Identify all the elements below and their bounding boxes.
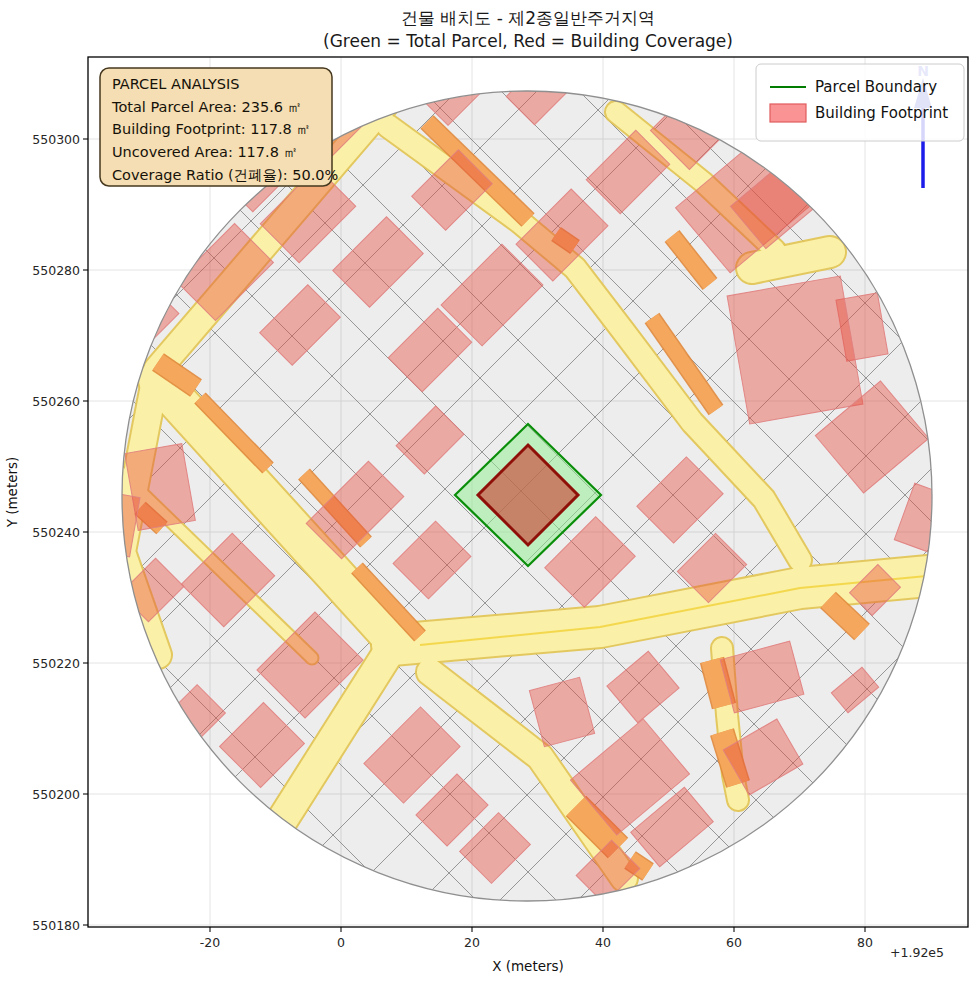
x-tick-label: 40 (595, 935, 611, 950)
legend-footprint-label: Building Footprint (815, 104, 948, 122)
x-axis-label: X (meters) (492, 958, 564, 974)
y-tick-label: 550280 (32, 263, 80, 278)
chart-title: 건물 배치도 - 제2종일반주거지역 (401, 8, 655, 28)
axis-offset-text: +1.92e5 (890, 945, 944, 960)
parcel-analysis-box: PARCEL ANALYSIS Total Parcel Area: 235.6… (100, 68, 338, 186)
road (752, 252, 830, 268)
x-tick-label: 0 (337, 935, 345, 950)
x-tick-label: 20 (464, 935, 480, 950)
y-tick-label: 550200 (32, 787, 80, 802)
x-tick-label: 60 (726, 935, 742, 950)
figure-canvas: -200204060805501805502005502205502405502… (0, 0, 976, 990)
y-tick-label: 550220 (32, 656, 80, 671)
x-tick-label: -20 (200, 935, 220, 950)
info-coverage-ratio: Coverage Ratio (건폐율): 50.0% (112, 167, 338, 183)
y-tick-label: 550260 (32, 394, 80, 409)
y-tick-label: 550240 (32, 525, 80, 540)
building (727, 276, 863, 424)
legend-parcel-label: Parcel Boundary (815, 78, 937, 96)
info-building-footprint: Building Footprint: 117.8 ㎡ (112, 121, 311, 137)
x-tick-label: 80 (857, 935, 873, 950)
info-total-area: Total Parcel Area: 235.6 ㎡ (111, 99, 302, 115)
chart-subtitle: (Green = Total Parcel, Red = Building Co… (323, 31, 733, 51)
info-uncovered-area: Uncovered Area: 117.8 ㎡ (112, 144, 298, 160)
y-axis-label: Y (meters) (4, 457, 20, 529)
y-tick-label: 550180 (32, 918, 80, 933)
info-title: PARCEL ANALYSIS (112, 76, 239, 92)
y-tick-label: 550300 (32, 132, 80, 147)
legend-box (756, 64, 964, 141)
legend-footprint-swatch (770, 104, 806, 122)
legend: Parcel Boundary Building Footprint (756, 64, 964, 141)
